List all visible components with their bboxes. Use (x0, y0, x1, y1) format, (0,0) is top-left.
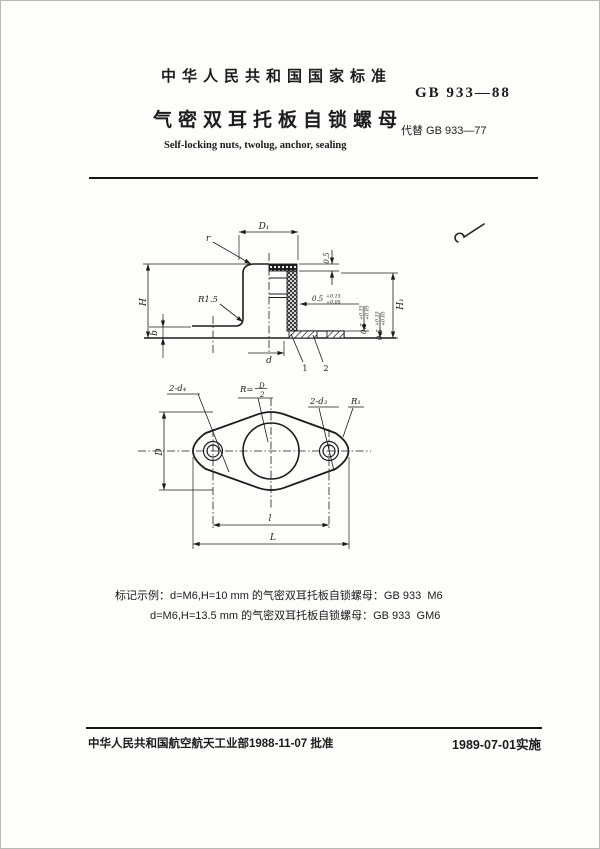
callout-holes-inner: 2-d₃ (309, 397, 328, 407)
plan-view-drawing: 2-d₄ R= D 2 2-d₃ R₁ D l L (138, 382, 371, 549)
implementation-date: 1989-07-01实施 (341, 734, 541, 753)
svg-text:2: 2 (259, 391, 265, 399)
part-callout-1: 1 (302, 364, 307, 374)
marking-example-line1: 标记示例：d=M6,H=10 mm 的气密双耳托板自锁螺母：GB 933 M6 (115, 587, 443, 603)
document-page: 中华人民共和国国家标准 GB 933—88 气密双耳托板自锁螺母 代替 GB 9… (0, 0, 600, 849)
pen-checkmark (455, 224, 484, 242)
section-view-drawing: D₁ r R1.5 H b 0.5 0.5 +0.15 +0.05 0.5 +0… (139, 222, 406, 374)
dim-label-d1-diameter: D₁ (258, 222, 270, 232)
marking-example-line2: d=M6,H=13.5 mm 的气密双耳托板自锁螺母：GB 933 GM6 (150, 607, 440, 623)
tolerance-label-vertical-1: 0.5 +0.15 +0.05 (350, 301, 371, 334)
svg-text:0.5 +0.15: 0.5 +0.15 +0.05 (350, 301, 371, 334)
svg-text:R=: R= (239, 385, 254, 395)
dim-label-H1: H₁ (396, 298, 406, 310)
dim-label-b: b (150, 330, 160, 336)
technical-drawing: D₁ r R1.5 H b 0.5 0.5 +0.15 +0.05 0.5 +0… (1, 1, 600, 849)
footer-divider (86, 727, 542, 729)
tolerance-label-horizontal: 0.5 +0.15 +0.05 (312, 285, 345, 306)
callout-center-radius: R= D 2 (239, 382, 265, 399)
dim-label-r15-fillet: R1.5 (197, 295, 218, 305)
part-callout-2: 2 (323, 364, 328, 374)
callout-holes-outer: 2-d₄ (168, 384, 187, 394)
dim-label-L-length: L (269, 533, 276, 543)
dim-label-H: H (139, 298, 149, 307)
dim-label-D-width: D (155, 448, 165, 456)
dim-label-r-radius: r (206, 234, 211, 244)
callout-end-radius: R₁ (350, 397, 361, 407)
dim-label-seal-height: 0.5 (323, 252, 331, 264)
approval-note: 中华人民共和国航空航天工业部1988-11-07 批准 (88, 735, 333, 751)
dim-label-l-spacing: l (269, 514, 272, 524)
dim-label-d-thread: d (266, 356, 272, 366)
